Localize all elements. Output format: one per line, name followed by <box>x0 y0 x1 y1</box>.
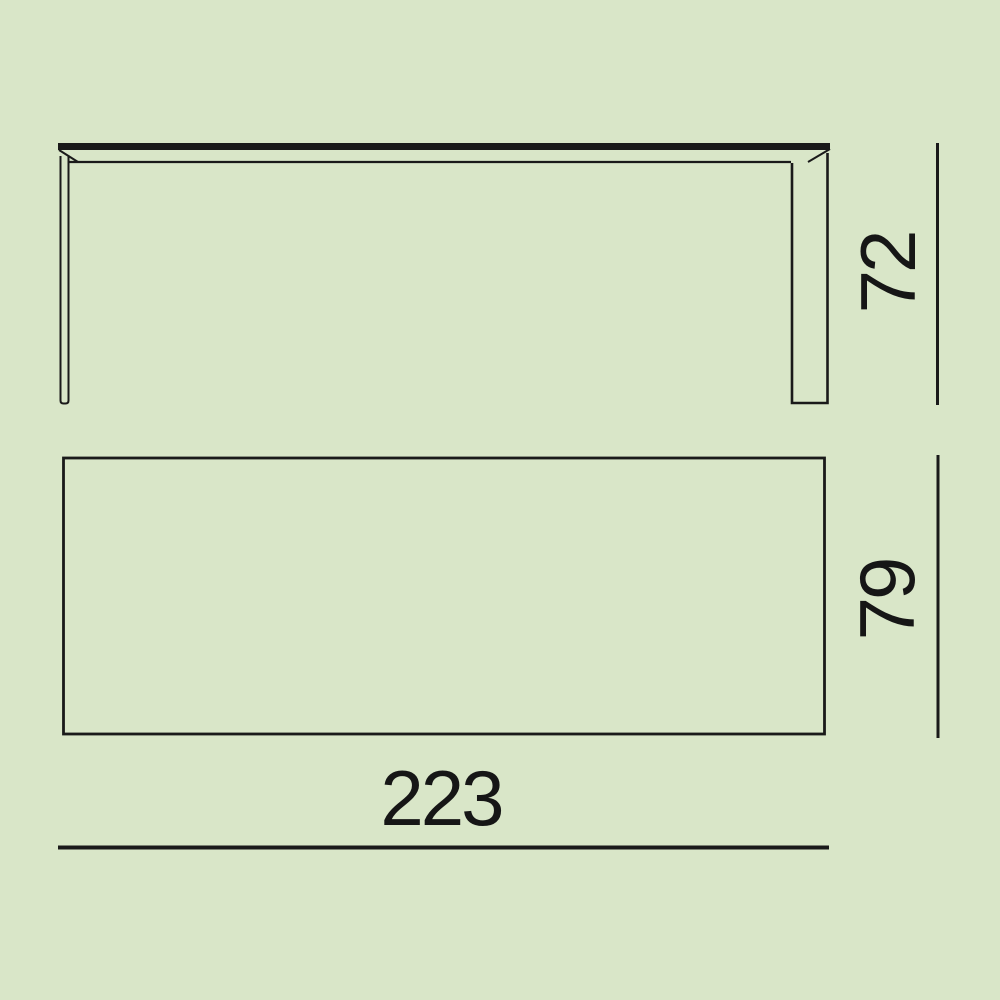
table-right-leg <box>792 153 828 403</box>
table-left-leg <box>61 156 69 404</box>
top-plan-view <box>64 458 825 734</box>
tabletop-edge <box>58 143 830 150</box>
dimension-annotations: 72 79 223 <box>58 143 938 848</box>
width-dimension-label: 223 <box>380 754 501 842</box>
front-elevation-view <box>58 143 830 404</box>
tabletop-plan-outline <box>64 458 825 734</box>
table-dimension-diagram: 72 79 223 <box>0 0 1000 1000</box>
dimension-drawing: 72 79 223 <box>0 0 1000 1000</box>
depth-dimension-label: 79 <box>843 560 931 641</box>
height-dimension-label: 72 <box>844 233 932 314</box>
